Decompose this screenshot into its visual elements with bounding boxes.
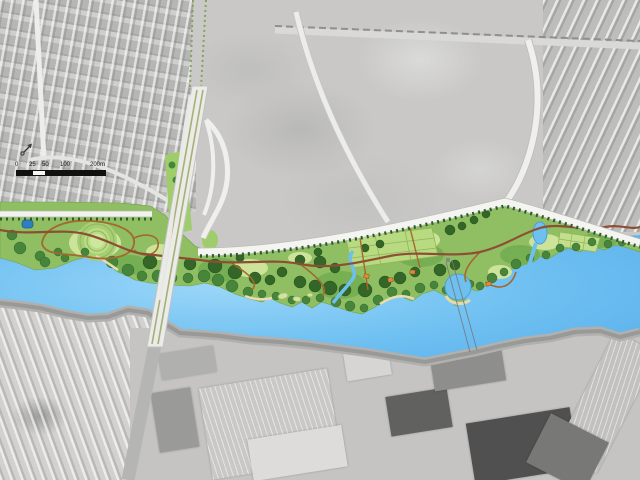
masterplan-map: 0 25 50 100 200m [0, 0, 640, 480]
scale-tick-label: 0 [15, 162, 18, 168]
small-pond [22, 220, 33, 228]
north-arrow-icon [18, 142, 34, 158]
aerial-road-continuation [128, 345, 155, 480]
scale-tick-label: 100 [60, 162, 70, 168]
scale-bar: 0 25 50 100 200m [16, 148, 112, 184]
scale-bar-segments [16, 170, 106, 176]
scale-tick-label: 25 [29, 162, 36, 168]
northeast-pond [533, 222, 547, 244]
lagoon [445, 274, 471, 300]
pylon [446, 258, 450, 262]
scale-tick-label: 50 [42, 162, 49, 168]
plan-overlay [0, 0, 640, 480]
aerial-roads [30, 0, 640, 222]
scale-tick-label: 200m [90, 162, 105, 168]
